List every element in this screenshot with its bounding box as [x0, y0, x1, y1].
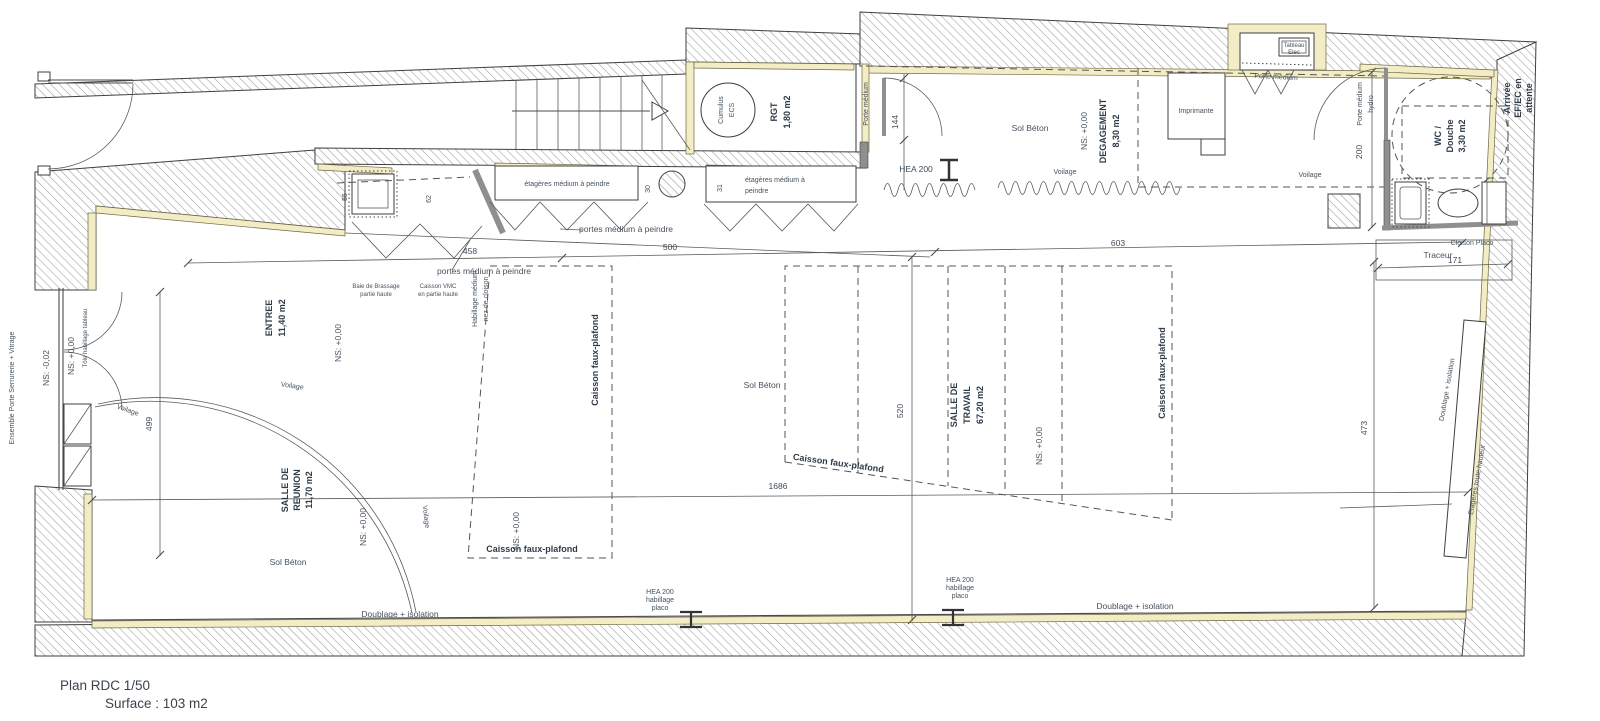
- cumulus-ecs-tank: [701, 83, 755, 137]
- annotation-ensemble-porte: Ensemble Porte Serrurerie + Vitrage: [9, 331, 16, 444]
- annotation-doublage: Doublage + isolation: [1439, 358, 1457, 422]
- annotation-portes-medium: portes médium à peindre: [579, 224, 673, 234]
- wall-bottom-left-block: [35, 486, 92, 622]
- annotation-habillage: habillage: [946, 585, 974, 592]
- dim-62: 62: [426, 195, 433, 203]
- dim-144: 144: [890, 115, 900, 129]
- title-block: Plan RDC 1/50 Surface : 103 m2: [60, 678, 208, 711]
- printer-box: [1168, 73, 1225, 139]
- annotation-arrivee-3: attente: [1524, 83, 1534, 113]
- dim-31: 31: [717, 184, 724, 192]
- annotation-hydro: hydro: [1368, 95, 1375, 113]
- dim-520: 520: [895, 404, 905, 418]
- annotation-voilage: Voilage: [1054, 169, 1077, 176]
- annotation-portes-medium: portes médium à peindre: [437, 266, 531, 276]
- toilet-bowl: [1438, 189, 1478, 217]
- toilet-tank: [1482, 182, 1506, 224]
- room-label-wc-1: WC /: [1433, 126, 1443, 146]
- room-label-degagement: DEGAGEMENT: [1098, 98, 1108, 163]
- annotation-porte-medium: Porte médium: [1254, 73, 1298, 82]
- level-ns-0: NS: +0,00: [1034, 427, 1044, 465]
- annotation-hea200: HEA 200: [646, 589, 674, 596]
- insulation-strips: [84, 62, 1498, 628]
- level-ns-0: NS: +0,00: [511, 512, 521, 550]
- dim-200: 200: [1354, 145, 1364, 159]
- dim-171: 171: [1448, 255, 1462, 265]
- dim-line-top: [188, 242, 1462, 263]
- annotation-porte-medium: Porte médium: [863, 82, 870, 126]
- annotation-etageres-l2: peindre: [745, 188, 768, 195]
- room-label-travail-2: TRAVAIL: [962, 386, 972, 424]
- annotation-doublage: Doublage + isolation: [361, 609, 439, 619]
- stairs: [512, 75, 690, 151]
- annotation-habillage: habillage: [646, 597, 674, 604]
- interior-partitions: [92, 64, 1518, 620]
- room-area-travail: 67,20 m2: [975, 386, 985, 424]
- stairs-direction-arrow: [652, 102, 668, 120]
- annotation-habillage-nez-2: nez de cloison: [483, 277, 490, 322]
- annotation-baie-2: partie haute: [360, 292, 392, 298]
- room-label-wc-2: Douche: [1445, 119, 1455, 152]
- dim-603: 603: [1111, 238, 1125, 248]
- annotation-vmc-2: en partie haute: [418, 292, 459, 298]
- floor-plan: Ensemble Porte Serrurerie + Vitrage NS: …: [0, 0, 1600, 721]
- voilage-wave-1: [884, 184, 975, 197]
- annotation-arrivee-1: Arrivée: [1502, 82, 1512, 113]
- shelf-leader: [1340, 504, 1452, 508]
- level-ns-minus: NS: -0,02: [41, 350, 51, 386]
- dim-30: 30: [645, 185, 652, 193]
- tableau-elec-niche: [1228, 24, 1326, 94]
- level-ns-0: NS: +0,00: [358, 508, 368, 546]
- annotation-etageres-l1: étagères médium à: [745, 177, 805, 184]
- annotation-voilage: Voilage: [1299, 172, 1322, 179]
- equipment-tableau-1: Tableau: [1283, 43, 1304, 49]
- equipment-cumulus-1: Cumulus: [718, 96, 725, 124]
- plan-surface: Surface : 103 m2: [105, 696, 208, 711]
- annotation-voilage: Voilage: [116, 403, 140, 417]
- shelf-niche-2: [706, 166, 856, 202]
- annotation-baie-1: Baie de Brassage: [352, 284, 400, 290]
- annotation-sol-beton: Sol Béton: [270, 557, 307, 567]
- wall-step-above-rgt: [686, 28, 862, 64]
- annotation-tole: Tôle habillage tableau: [83, 309, 89, 368]
- annotation-caisson-fp: Caisson faux-plafond: [1157, 327, 1167, 419]
- annotation-etageres: étagères médium à peindre: [524, 181, 609, 188]
- annotation-cloison-placo: Cloison Placo: [1451, 240, 1494, 247]
- room-area-rgt: 1,80 m2: [782, 95, 792, 128]
- annotation-hea200: HEA 200: [899, 164, 933, 174]
- voilage-wave-2: [998, 182, 1180, 195]
- room-label-reunion-1: SALLE DE: [280, 468, 290, 513]
- annotation-voilage: Voilage: [421, 505, 431, 529]
- annotation-caisson-fp: Caisson faux-plafond: [792, 452, 884, 475]
- text-labels: Ensemble Porte Serrurerie + Vitrage NS: …: [9, 43, 1534, 619]
- annotation-vmc-1: Caisson VMC: [420, 284, 457, 290]
- room-label-rgt: RGT: [769, 102, 779, 122]
- dim-500: 500: [663, 242, 677, 252]
- room-label-entree: ENTREE: [264, 300, 274, 337]
- dim-1686: 1686: [769, 481, 788, 491]
- round-column: [659, 171, 685, 197]
- hea-beam-icon-top: [940, 160, 958, 180]
- annotation-caisson-fp: Caisson faux-plafond: [590, 314, 600, 406]
- annotation-placo: placo: [952, 593, 969, 600]
- annotation-doublage: Doublage + isolation: [1096, 601, 1174, 611]
- equipment-imprimante: Imprimante: [1178, 108, 1213, 115]
- stairs-cut-line: [642, 80, 690, 150]
- equipment-cumulus-2: ECS: [729, 102, 736, 117]
- dim-458: 458: [463, 246, 477, 256]
- room-area-entree: 11,40 m2: [277, 299, 287, 337]
- annotation-sol-beton: Sol Béton: [1012, 123, 1049, 133]
- annotation-porte-medium: Porte médium: [1357, 82, 1364, 126]
- room-area-reunion: 11,70 m2: [304, 471, 314, 509]
- dim-499: 499: [144, 417, 154, 431]
- dashed-overlays: [337, 66, 1508, 558]
- equipment-tableau-2: Elec: [1288, 50, 1300, 56]
- room-area-wc: 3,30 m2: [1457, 119, 1467, 152]
- annotation-sol-beton: Sol Béton: [744, 380, 781, 390]
- level-ns-0: NS: +0,00: [66, 337, 76, 375]
- curtains: [95, 182, 1180, 614]
- plan-title: Plan RDC 1/50: [60, 678, 150, 693]
- annotation-caisson-fp: Caisson faux-plafond: [486, 544, 578, 554]
- annotation-arrivee-2: EF/EC en: [1513, 78, 1523, 118]
- annotation-hea200: HEA 200: [946, 577, 974, 584]
- room-label-travail-1: SALLE DE: [949, 383, 959, 428]
- level-ns-0: NS: +0,00: [1079, 112, 1089, 150]
- room-label-reunion-2: REUNION: [292, 469, 302, 511]
- duct-column: [1328, 194, 1360, 228]
- dim-473: 473: [1359, 421, 1369, 435]
- annotation-habillage-nez-1: Habillage médium: [472, 271, 479, 327]
- level-ns-0: NS: +0,00: [333, 324, 343, 362]
- entrance-doors: [59, 288, 122, 490]
- room-area-degagement: 8,30 m2: [1111, 114, 1121, 147]
- annotation-voilage: Voilage: [280, 381, 304, 391]
- wc-door: [1314, 68, 1386, 140]
- annotation-placo: placo: [652, 605, 669, 612]
- dim-55: 55: [342, 193, 349, 201]
